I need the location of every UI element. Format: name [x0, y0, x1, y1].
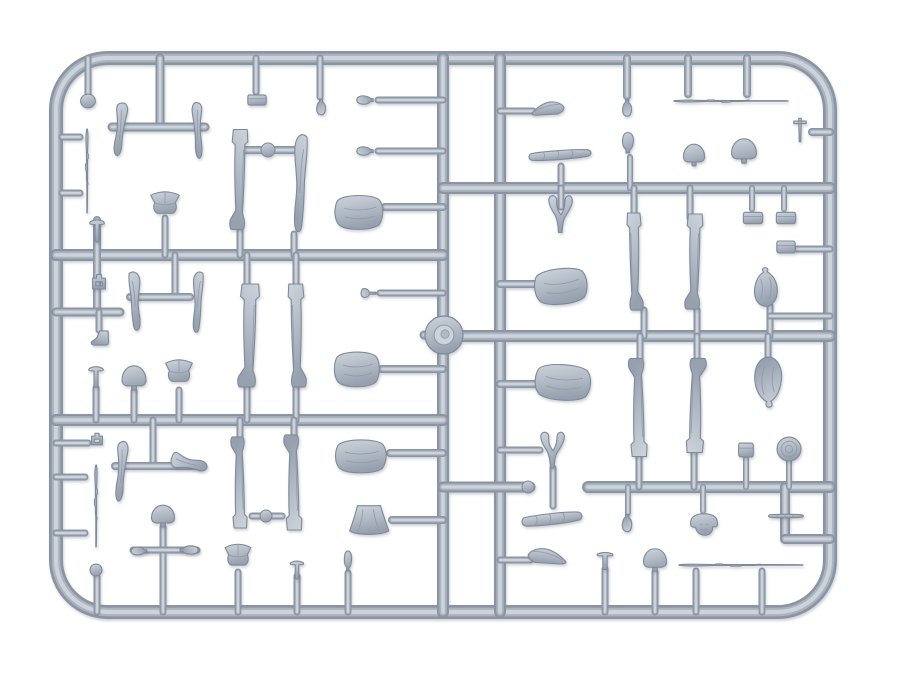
- equipment-pouch-part: [776, 212, 795, 223]
- sprue-image: [0, 0, 897, 673]
- sprue-photo: [0, 0, 897, 673]
- molded-disc-part: [90, 564, 102, 576]
- gate-knob: [522, 481, 534, 493]
- equipment-pouch-part: [739, 443, 754, 457]
- injection-hub: [425, 316, 463, 354]
- figure-torso-part: [335, 195, 383, 229]
- winter-hat-part: [225, 544, 251, 565]
- winter-hat-part: [151, 192, 180, 214]
- gate-knob: [260, 510, 272, 522]
- equipment-pouch-part: [743, 212, 762, 223]
- figure-torso-part: [336, 440, 387, 473]
- drum-magazine-part: [777, 437, 801, 461]
- gate-knob: [261, 143, 275, 157]
- cleaning-rod-part: [768, 514, 803, 517]
- figure-torso-part: [334, 352, 379, 387]
- figure-torso-part: [534, 363, 592, 402]
- equipment-pouch-part: [248, 95, 266, 105]
- equipment-pouch-part: [777, 241, 795, 253]
- molded-disc-part: [81, 94, 96, 108]
- winter-hat-part: [166, 360, 193, 382]
